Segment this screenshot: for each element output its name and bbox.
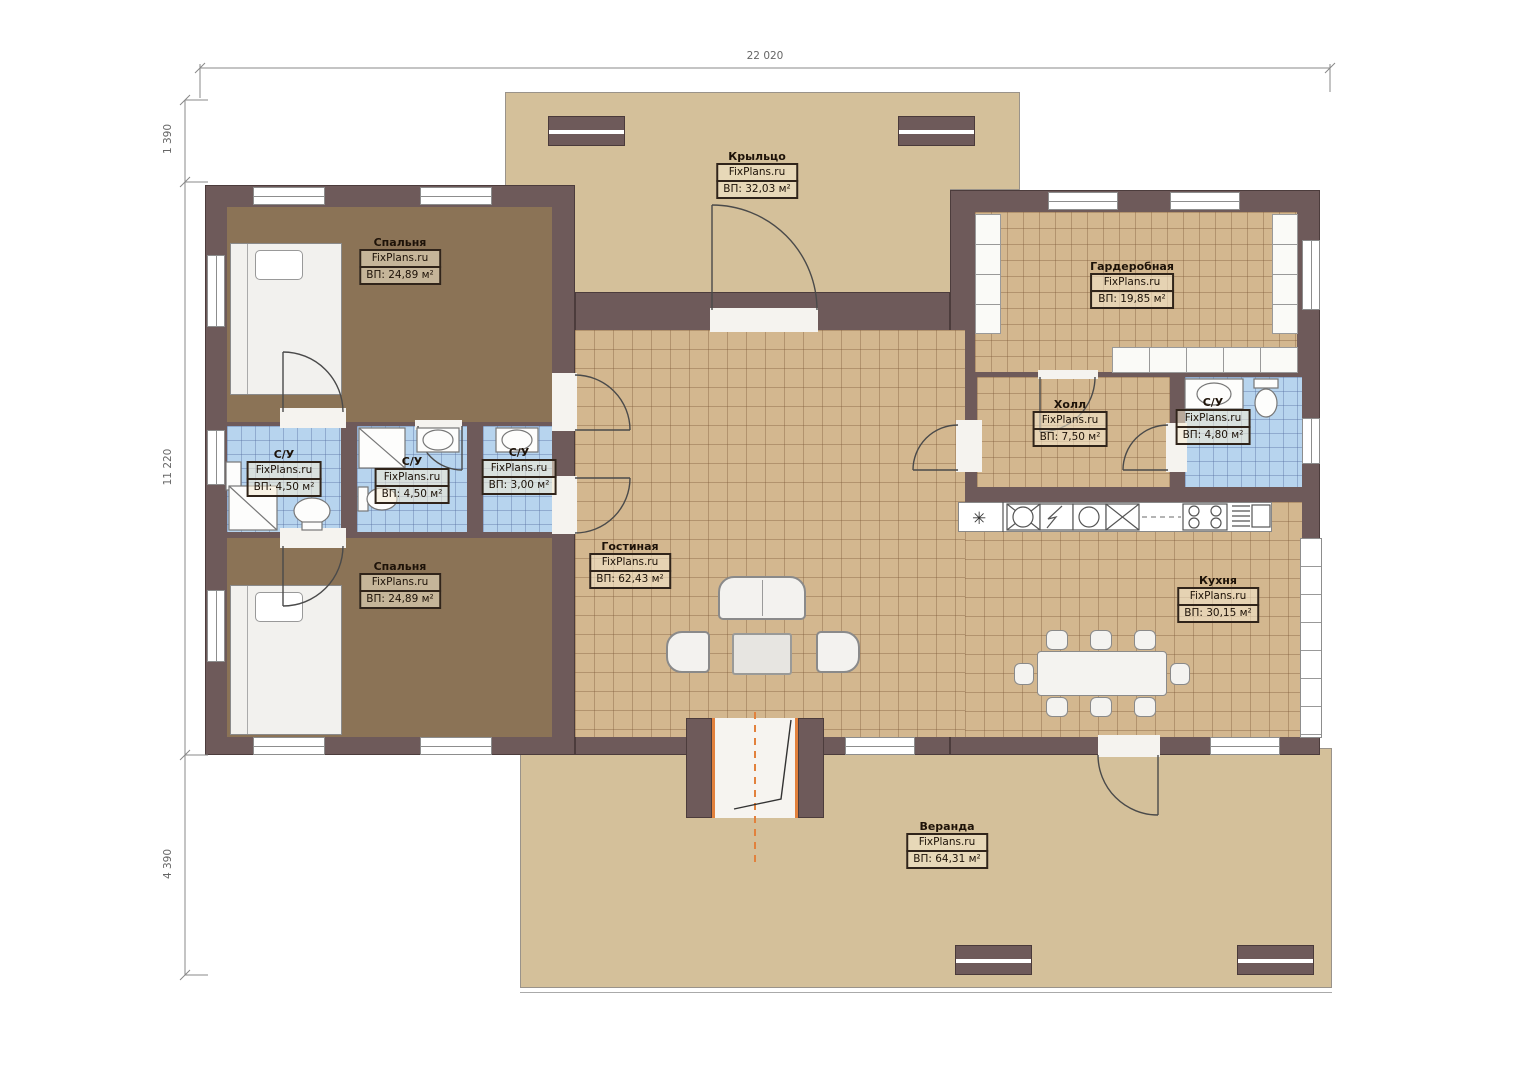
bed-headboard	[231, 586, 248, 734]
sofa	[718, 576, 806, 620]
window	[1302, 240, 1320, 310]
room-label-living: Гостиная FixPlans.ru ВП: 62,43 м²	[589, 540, 671, 589]
veranda-step-line	[520, 992, 1332, 993]
dim-width-top: 22 020	[735, 50, 795, 62]
door-opening	[415, 420, 462, 430]
window	[1048, 192, 1118, 210]
room-name: С/У	[1176, 396, 1251, 409]
brand-box: FixPlans.ru	[482, 459, 557, 478]
window	[420, 187, 492, 205]
window	[207, 255, 225, 327]
door-opening	[280, 528, 346, 548]
dining-chair	[1014, 663, 1034, 685]
bed-headboard	[231, 244, 248, 394]
room-label-hall: Холл FixPlans.ru ВП: 7,50 м²	[1033, 398, 1108, 447]
porch-column	[898, 116, 975, 146]
door-opening	[956, 420, 982, 472]
door-opening	[1098, 735, 1160, 757]
kitchen-counter	[958, 502, 1272, 532]
room-name: Гардеробная	[1090, 260, 1174, 273]
dim-left-bottom: 4 390	[162, 834, 174, 894]
room-label-wc1: С/У FixPlans.ru ВП: 4,50 м²	[247, 448, 322, 497]
floor-plan: ✳ 22 020 1 390 11 220 4 390 Крыльцо FixP…	[0, 0, 1528, 1080]
room-label-porch: Крыльцо FixPlans.ru ВП: 32,03 м²	[716, 150, 798, 199]
porch-door-opening	[710, 308, 818, 332]
wardrobe-shelf-left	[975, 214, 1001, 334]
window	[253, 187, 325, 205]
window	[253, 737, 325, 755]
area-box: ВП: 30,15 м²	[1177, 604, 1259, 623]
window	[420, 737, 492, 755]
bed-pillow	[255, 592, 303, 622]
window	[1170, 192, 1240, 210]
room-label-bedroom1: Спальня FixPlans.ru ВП: 24,89 м²	[359, 236, 441, 285]
porch-column	[548, 116, 625, 146]
room-label-kitchen: Кухня FixPlans.ru ВП: 30,15 м²	[1177, 574, 1259, 623]
room-label-bedroom2: Спальня FixPlans.ru ВП: 24,89 м²	[359, 560, 441, 609]
area-box: ВП: 19,85 м²	[1090, 290, 1174, 309]
room-label-wc3: С/У FixPlans.ru ВП: 3,00 м²	[482, 446, 557, 495]
room-name: Кухня	[1177, 574, 1259, 587]
bed	[230, 243, 342, 395]
area-box: ВП: 4,50 м²	[375, 485, 450, 504]
dining-chair	[1046, 697, 1068, 717]
dining-chair	[1134, 630, 1156, 650]
room-name: Спальня	[359, 236, 441, 249]
dining-table	[1037, 651, 1167, 696]
area-box: ВП: 4,50 м²	[247, 478, 322, 497]
dining-chair	[1090, 697, 1112, 717]
room-name: С/У	[482, 446, 557, 459]
room-name: С/У	[375, 455, 450, 468]
area-box: ВП: 24,89 м²	[359, 590, 441, 609]
armchair	[666, 631, 710, 673]
window	[1210, 737, 1280, 755]
room-name: Холл	[1033, 398, 1108, 411]
room-label-wc2: С/У FixPlans.ru ВП: 4,50 м²	[375, 455, 450, 504]
window	[845, 737, 915, 755]
entry-pier-right	[798, 718, 824, 818]
wardrobe-shelf-bottom	[1112, 347, 1298, 373]
area-box: ВП: 32,03 м²	[716, 180, 798, 199]
entry-pier-left	[686, 718, 712, 818]
room-name: Веранда	[906, 820, 988, 833]
area-box: ВП: 64,31 м²	[906, 850, 988, 869]
brand-box: FixPlans.ru	[1176, 409, 1251, 428]
window	[207, 430, 225, 485]
bed	[230, 585, 342, 735]
dining-chair	[1170, 663, 1190, 685]
area-box: ВП: 24,89 м²	[359, 266, 441, 285]
area-box: ВП: 4,80 м²	[1176, 426, 1251, 445]
veranda-column	[1237, 945, 1314, 975]
main-entrance	[712, 718, 798, 818]
armchair	[816, 631, 860, 673]
window	[1302, 418, 1320, 464]
dining-chair	[1090, 630, 1112, 650]
area-box: ВП: 3,00 м²	[482, 476, 557, 495]
room-label-veranda: Веранда FixPlans.ru ВП: 64,31 м²	[906, 820, 988, 869]
brand-box: FixPlans.ru	[375, 468, 450, 487]
bed-pillow	[255, 250, 303, 280]
area-box: ВП: 7,50 м²	[1033, 428, 1108, 447]
dim-left-middle: 11 220	[162, 437, 174, 497]
room-name: Спальня	[359, 560, 441, 573]
door-opening	[1038, 370, 1098, 379]
veranda-column	[955, 945, 1032, 975]
room-name: С/У	[247, 448, 322, 461]
dining-chair	[1134, 697, 1156, 717]
living-room-floor	[575, 330, 965, 737]
kitchen-window-band	[1300, 538, 1322, 738]
room-label-wc4: С/У FixPlans.ru ВП: 4,80 м²	[1176, 396, 1251, 445]
dim-left-top: 1 390	[162, 109, 174, 169]
area-box: ВП: 62,43 м²	[589, 570, 671, 589]
coffee-table	[732, 633, 792, 675]
wardrobe-shelf-right	[1272, 214, 1298, 334]
door-opening	[280, 408, 346, 428]
window	[207, 590, 225, 662]
brand-box: FixPlans.ru	[1033, 411, 1108, 430]
room-name: Крыльцо	[716, 150, 798, 163]
room-name: Гостиная	[589, 540, 671, 553]
dining-chair	[1046, 630, 1068, 650]
brand-box: FixPlans.ru	[247, 461, 322, 480]
door-opening	[552, 373, 577, 431]
room-label-wardrobe: Гардеробная FixPlans.ru ВП: 19,85 м²	[1090, 260, 1174, 309]
